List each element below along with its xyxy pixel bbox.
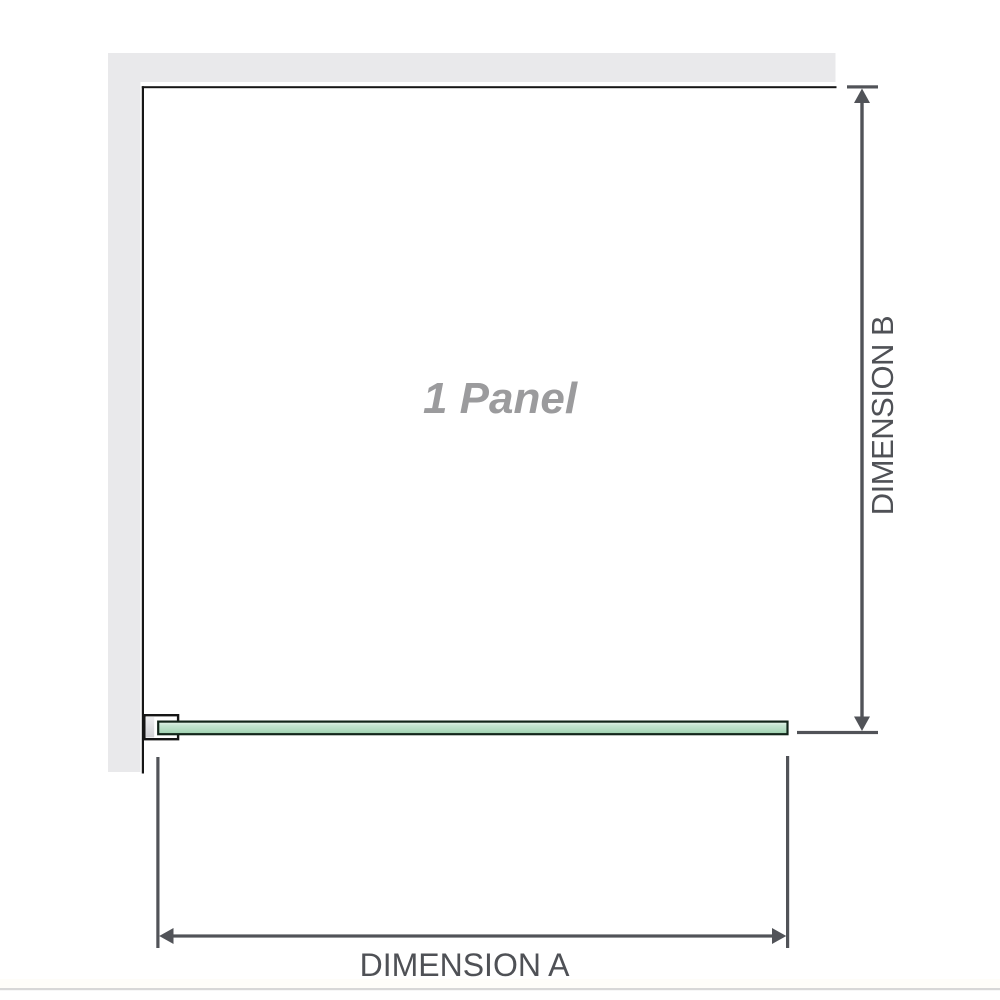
svg-text:1 Panel: 1 Panel bbox=[423, 374, 578, 423]
svg-text:DIMENSION B: DIMENSION B bbox=[865, 316, 900, 515]
svg-text:DIMENSION A: DIMENSION A bbox=[360, 947, 570, 983]
